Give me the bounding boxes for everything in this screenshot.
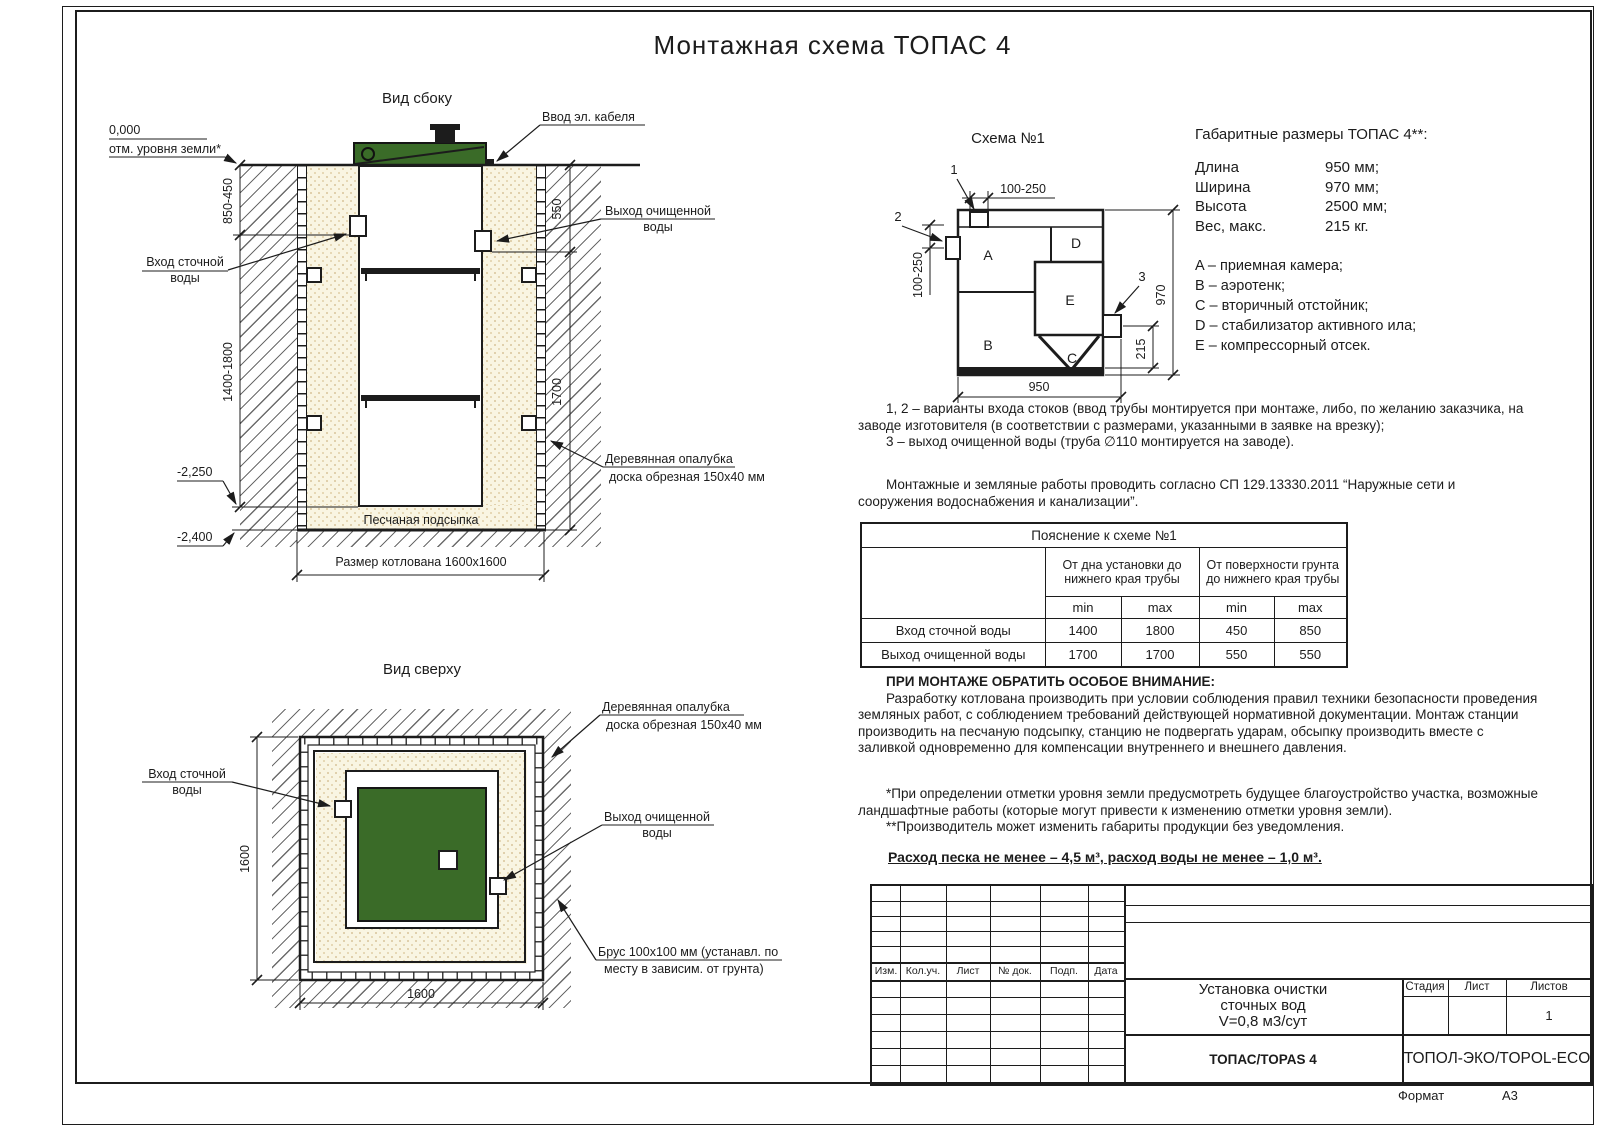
leader-lines [902,179,1139,313]
zero-mark-label: 0,000 [109,123,140,137]
marker-1: 1 [950,162,957,177]
legend-item: C – вторичный отстойник; [1195,296,1416,316]
model-cell: ТОПАС/TOPAS 4 [1124,1034,1402,1084]
formwork-label: Деревянная опалубка [605,452,733,466]
format-value: А3 [1502,1088,1518,1103]
beam-label: месту в зависим. от грунта) [604,962,764,976]
sand-fill-right [483,165,536,509]
consumption-note: Расход песка не менее – 4,5 м³, расход в… [888,849,1322,865]
compartment-legend: A – приемная камера; B – аэротенк; C – в… [1195,256,1416,356]
format-label: Формат [1398,1088,1444,1103]
outlet-label: Выход очищенной [605,204,711,218]
attention-note: ПРИ МОНТАЖЕ ОБРАТИТЬ ОСОБОЕ ВНИМАНИЕ: Ра… [858,674,1538,757]
compartment-a: A [983,247,993,263]
spec-heading: Габаритные размеры ТОПАС 4**: [1195,126,1428,143]
side-view-title: Вид сбоку [382,90,452,107]
table-corner-cell [861,548,1045,619]
tank-plan [946,210,1121,375]
vent-hatch [438,850,458,870]
spec-row: Вес, макс.215 кг. [1195,218,1428,238]
cable-entry-label: Ввод эл. кабеля [542,110,635,124]
table-group-header: От поверхности грунта до нижнего края тр… [1199,548,1347,597]
grid-line [872,901,1124,902]
schema-1: Схема №1 A B C D E 1 2 3 100-250 100-250… [858,125,1203,425]
spacer-block [521,415,537,431]
table-row: Вход сточной воды 1400 1800 450 850 [861,619,1347,643]
inlet-pipe-stub [349,215,367,237]
note-text: Монтажные и земляные работы проводить со… [858,477,1534,510]
schema-title: Схема №1 [971,130,1045,147]
grid-line [872,916,1124,917]
legend-item: D – стабилизатор активного ила; [1195,316,1416,336]
dimensions-spec: Габаритные размеры ТОПАС 4**: Длина950 м… [1195,126,1428,237]
page-title: Монтажная схема ТОПАС 4 [75,30,1590,61]
sand-bedding [307,505,536,529]
soil-hatch-right [546,165,601,547]
table-group-header: От дна установки до нижнего края трубы [1045,548,1199,597]
title-block: Изм. Кол.уч. Лист № док. Подп. Дата Уста… [870,884,1594,1086]
compartment-c: C [1067,350,1077,366]
inlet-label: воды [172,783,201,797]
schema-1-drawing: Схема №1 A B C D E 1 2 3 100-250 100-250… [858,125,1203,425]
spacer-block [521,267,537,283]
table-row: Выход очищенной воды 1700 1700 550 550 [861,643,1347,668]
dimension-lines [922,191,1180,403]
compartment-b: B [983,337,992,353]
doc-title-cell: Установка очистки сточных вод V=0,8 м3/с… [1124,978,1402,1034]
outlet-pipe-stub [474,230,492,252]
note-text: 1, 2 – варианты входа стоков (ввод трубы… [858,401,1534,434]
rev-col-izm: Изм. [872,962,900,980]
rev-col-koluch: Кол.уч. [900,962,946,980]
top-view-title: Вид сверху [383,661,462,678]
dim-100-250-top: 100-250 [1000,182,1046,196]
legend-item: B – аэротенк; [1195,276,1416,296]
table-min-header: min [1199,597,1274,619]
spec-row: Ширина970 мм; [1195,179,1428,199]
dim-100-250-left: 100-250 [911,252,925,298]
sheets-value: 1 [1506,996,1592,1034]
doc-title-line: сточных вод [1220,998,1305,1014]
sheets-header: Листов [1506,978,1592,996]
cable-entry-block [485,159,494,166]
grid-line [872,1048,1124,1049]
tank-divider-lower [361,395,480,401]
grid-line [872,946,1124,947]
formwork-right [536,165,546,530]
formwork-label: доска обрезная 150x40 мм [606,718,762,732]
beam-label: Брус 100x100 мм (устанавл. по [598,945,778,959]
grid-line [872,980,1124,982]
marker-3: 3 [1138,269,1145,284]
rev-col-podp: Подп. [1040,962,1088,980]
vent-stem [435,129,455,143]
vent-cap [430,124,460,130]
soil-hatch-left [240,165,297,547]
tank-lid-top [357,787,487,922]
sheet-header: Лист [1448,978,1506,996]
stage-header: Стадия [1402,978,1448,996]
grid-line [1124,922,1592,923]
outlet-label: Выход очищенной [604,810,710,824]
doc-title-line: Установка очистки [1199,982,1328,998]
outlet-label: воды [642,826,671,840]
dim-970: 970 [1154,285,1168,306]
marker-2: 2 [894,209,901,224]
table-min-header: min [1045,597,1121,619]
dim-1600-vertical: 1600 [238,845,252,873]
attention-title: ПРИ МОНТАЖЕ ОБРАТИТЬ ОСОБОЕ ВНИМАНИЕ: [858,674,1538,691]
explanation-table: Пояснение к схеме №1 От дна установки до… [860,522,1348,668]
note-text: 3 – выход очищенной воды (труба ∅110 мон… [858,434,1534,451]
inlet-variants-note: 1, 2 – варианты входа стоков (ввод трубы… [858,401,1534,451]
grid-line [1124,905,1592,906]
spacer-block [306,267,322,283]
company-cell: ТОПОЛ-ЭКО/TOPOL-ECO [1402,1034,1592,1084]
inlet-label: Вход сточной [148,767,226,781]
spec-row: Высота2500 мм; [1195,198,1428,218]
grid-line [872,997,1124,998]
footnote: *При определении отметки уровня земли пр… [858,786,1538,819]
grid-line [872,1014,1124,1015]
attention-body: Разработку котлована производить при усл… [858,691,1538,757]
drawing-sheet: Монтажная схема ТОПАС 4 [0,0,1600,1131]
dim-215: 215 [1134,339,1148,360]
soil-hatch-bottom [297,530,546,547]
tank-body [358,165,483,507]
inlet-pipe-stub [334,800,352,818]
table-max-header: max [1121,597,1199,619]
side-view: Вид сбоку 0,000 отм. уровня земли* Ввод … [85,85,785,597]
formwork-label: доска обрезная 150x40 мм [609,470,765,484]
doc-title-line: V=0,8 м3/сут [1219,1014,1307,1030]
formwork-label: Деревянная опалубка [602,700,730,714]
top-view: Вид сверху Вход сточной воды Деревянная … [130,650,820,1028]
footnotes: *При определении отметки уровня земли пр… [858,786,1538,836]
dim-850-450: 850-450 [221,178,235,224]
level-2400-label: -2,400 [177,530,212,544]
legend-item: E – компрессорный отсек. [1195,336,1416,356]
legend-item: A – приемная камера; [1195,256,1416,276]
outlet-label: воды [643,220,672,234]
rev-col-data: Дата [1088,962,1124,980]
level-2250-label: -2,250 [177,465,212,479]
ground-level-label: отм. уровня земли* [109,142,221,156]
grid-line [872,1065,1124,1066]
grid-line [872,931,1124,932]
pit-size-label: Размер котлована 1600x1600 [335,555,506,569]
tank-divider-upper [361,268,480,274]
dim-950: 950 [1029,380,1050,394]
rev-col-ndok: № док. [990,962,1040,980]
lid-bolt-icon [361,147,375,161]
inlet-label: воды [170,271,199,285]
sp-standard-note: Монтажные и земляные работы проводить со… [858,477,1534,510]
formwork-left [297,165,307,530]
footnote: **Производитель может изменить габариты … [858,819,1538,836]
compartment-d: D [1071,235,1081,251]
spacer-block [306,415,322,431]
table-max-header: max [1274,597,1347,619]
spec-row: Длина950 мм; [1195,159,1428,179]
rev-col-list: Лист [946,962,990,980]
dim-1400-1800: 1400-1800 [221,342,235,402]
outlet-pipe-stub [489,877,507,895]
table-title: Пояснение к схеме №1 [861,523,1347,548]
compartment-e: E [1065,292,1074,308]
inlet-label: Вход сточной [146,255,224,269]
grid-line [872,1031,1124,1032]
